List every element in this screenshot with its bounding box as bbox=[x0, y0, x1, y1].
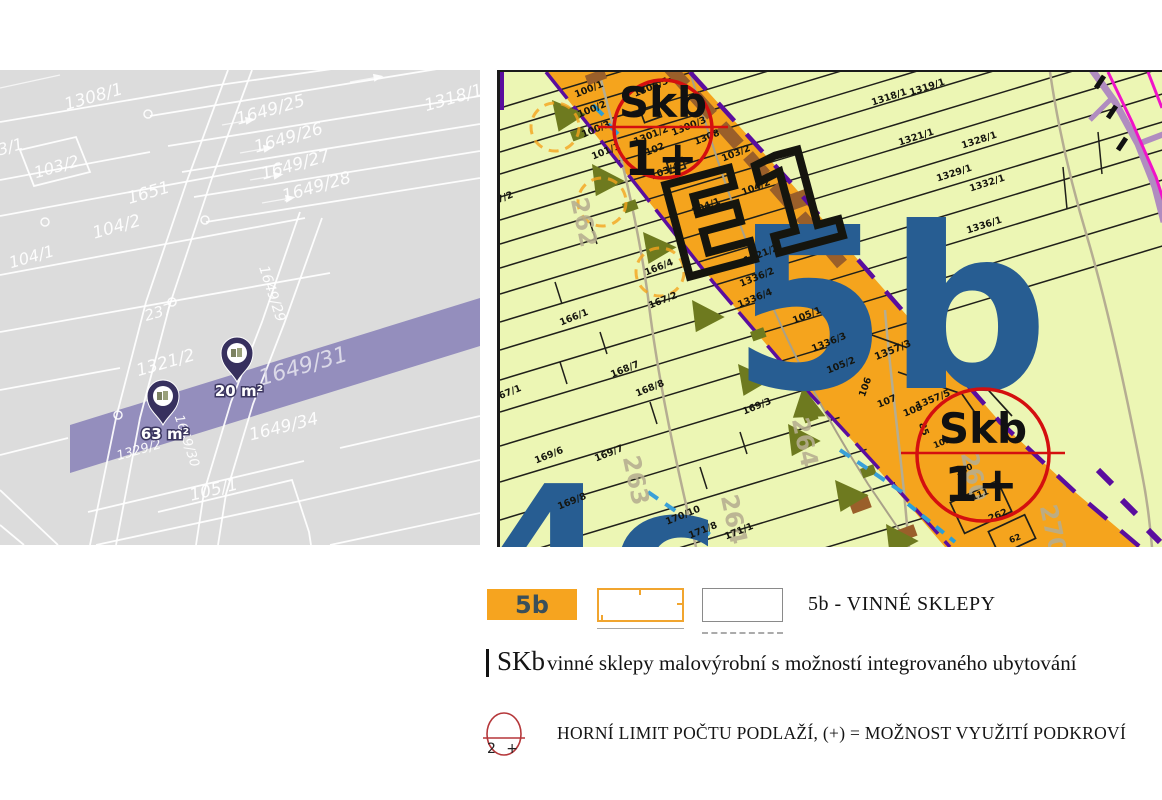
contour-elevation-label: 262 bbox=[565, 195, 603, 250]
legend-underline-solid bbox=[597, 628, 684, 629]
parcel-label: 1308/1 bbox=[62, 79, 125, 115]
parcel-label: 1321/2 bbox=[134, 345, 197, 381]
tick-mark bbox=[677, 603, 684, 605]
parcel-label: 105/1 bbox=[188, 475, 240, 506]
parcel-label: 168/8 bbox=[634, 378, 666, 400]
parcel-label: 167/1 bbox=[500, 383, 523, 404]
svg-text:2 +: 2 + bbox=[487, 741, 521, 757]
building-icon bbox=[231, 349, 236, 357]
legend: 5b 5b - VINNÉ SKLEPY SKb vinné sklepy ma… bbox=[0, 560, 1162, 800]
parcel-label: 1319/1 bbox=[908, 77, 946, 99]
tick-mark bbox=[601, 615, 603, 622]
building-icon bbox=[237, 348, 242, 357]
parcel-label: 237 bbox=[142, 299, 175, 324]
legend-zone-outline-gray-swatch bbox=[702, 588, 783, 622]
floor-limit-circle-icon: 2 + bbox=[482, 710, 528, 760]
parcel-label: 168/7 bbox=[609, 359, 641, 380]
legend-zone-outline-orange-swatch bbox=[597, 588, 684, 622]
legend-floor-limit-symbol: 2 + bbox=[482, 710, 528, 760]
floor-limit-value: 1+ bbox=[944, 457, 1018, 513]
parcel-label: 166/1 bbox=[558, 307, 590, 328]
floor-limit-value: 1+ bbox=[624, 131, 698, 187]
parcel-label: 103/2 bbox=[32, 151, 82, 182]
legend-zone-5b-code: 5b bbox=[515, 591, 549, 619]
parcel-label: 104/2 bbox=[90, 211, 143, 244]
legend-skb-text: vinné sklepy malovýrobní s možností inte… bbox=[547, 651, 1077, 676]
zoning-map-canvas: 5b E1 4c 262263264264260270 100/1100/210… bbox=[500, 72, 1162, 547]
parcel-lines bbox=[0, 70, 480, 545]
parcel-label: 1651 bbox=[125, 178, 172, 209]
parcel-label: 7/2 bbox=[500, 189, 515, 205]
building-icon bbox=[157, 392, 162, 400]
legend-zone-5b-swatch: 5b bbox=[487, 589, 577, 620]
building-icon bbox=[163, 391, 168, 400]
legend-skb-bar bbox=[486, 649, 489, 677]
parcel-label: 167/2 bbox=[647, 290, 679, 311]
parcel-label: 1321/1 bbox=[897, 127, 935, 149]
pin-area-label: 20 m² bbox=[215, 382, 263, 400]
tick-mark bbox=[639, 588, 641, 595]
legend-skb-code: SKb bbox=[497, 646, 545, 677]
parcel-label: 1649/29 bbox=[255, 264, 288, 324]
legend-underline-dashed bbox=[702, 632, 783, 634]
parcel-label: 1328/1 bbox=[960, 130, 998, 152]
legend-floor-limit-text: HORNÍ LIMIT POČTU PODLAŽÍ, (+) = MOŽNOST… bbox=[557, 723, 1126, 744]
skb-label: Skb bbox=[619, 78, 707, 127]
cadastral-map-canvas: 1308/11649/251649/261649/271649/281318/1… bbox=[0, 70, 480, 545]
roads-top-right bbox=[1090, 72, 1162, 222]
cadastral-map[interactable]: 1308/11649/251649/261649/271649/281318/1… bbox=[0, 70, 480, 545]
skb-label: Skb bbox=[939, 404, 1027, 453]
legend-zone-5b-text: 5b - VINNÉ SKLEPY bbox=[808, 593, 996, 616]
parcel-label: 1318/1 bbox=[870, 87, 908, 109]
planning-map-page: { "left_map": { "type": "cadastral", "ba… bbox=[0, 0, 1162, 800]
pin-area-label: 63 m² bbox=[141, 425, 189, 443]
parcel-label: 104/1 bbox=[7, 241, 57, 272]
zoning-map[interactable]: 5b E1 4c 262263264264260270 100/1100/210… bbox=[497, 70, 1162, 547]
parcel-label: 1318/1 bbox=[422, 80, 480, 116]
